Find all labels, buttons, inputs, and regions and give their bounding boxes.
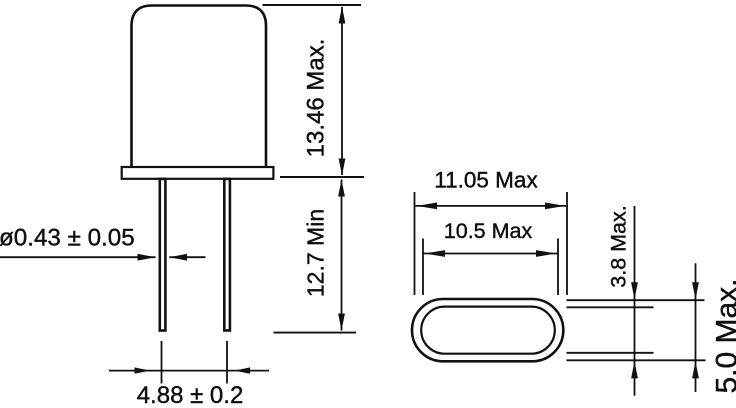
svg-text:13.46 Max.: 13.46 Max. (303, 39, 330, 158)
svg-text:3.8 Max.: 3.8 Max. (607, 205, 631, 287)
svg-text:5.0 Max.: 5.0 Max. (711, 278, 736, 393)
svg-text:4.88 ± 0.2: 4.88 ± 0.2 (137, 382, 244, 408)
svg-text:ø0.43 ± 0.05: ø0.43 ± 0.05 (0, 225, 135, 252)
svg-text:11.05 Max: 11.05 Max (434, 168, 538, 193)
svg-text:10.5 Max: 10.5 Max (444, 219, 533, 243)
svg-text:12.7 Min: 12.7 Min (303, 209, 329, 297)
